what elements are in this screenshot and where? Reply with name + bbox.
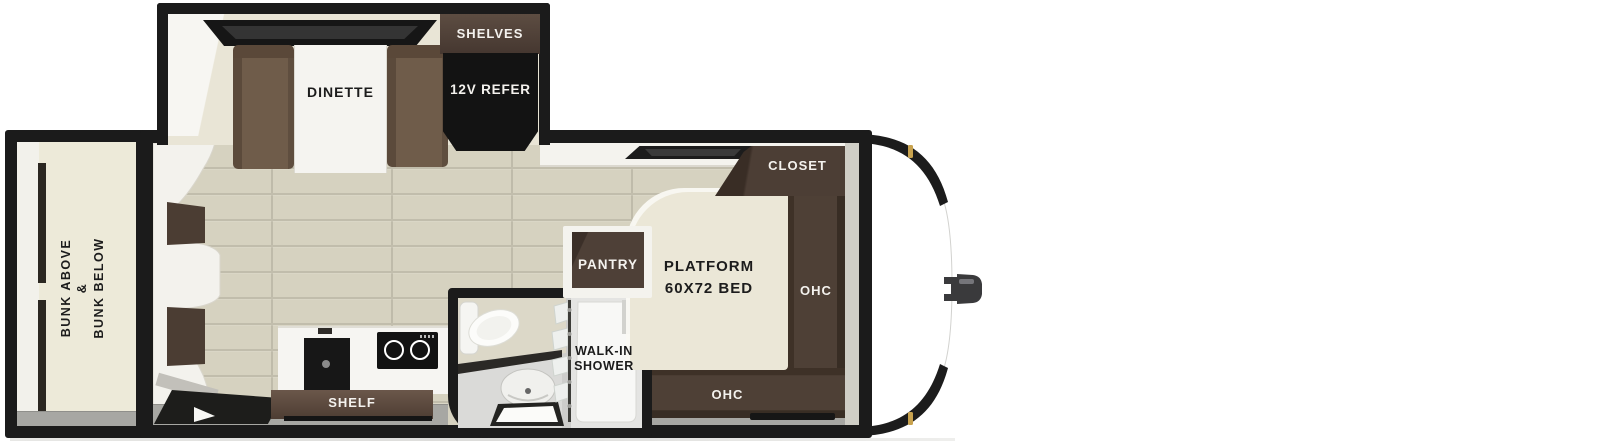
slideout-window-inner [222,26,418,39]
bed-label-line1: PLATFORM [630,258,788,275]
bed-label-line2: 60X72 BED [630,280,788,297]
bunk-label: BUNK ABOVE & BUNK BELOW [58,213,112,363]
shelves-label: SHELVES [440,26,540,41]
refrigerator-label: 12V REFER [443,82,538,97]
cooktop [377,332,438,369]
marker-light-top [908,145,913,158]
bunk-label-line2: & [74,213,90,363]
bed-step [750,413,835,420]
shelf-label: SHELF [271,395,433,410]
floorplan-canvas: BUNK ABOVE & BUNK BELOW SHELF [0,0,1600,443]
shower-glass-1 [554,302,568,324]
closet-label: CLOSET [755,158,840,173]
sink-drain [525,388,531,394]
bunk-label-line3: BUNK BELOW [91,213,107,363]
front-cap-graphic [855,128,995,443]
dinette-table [294,45,387,173]
dinette-label: DINETTE [294,84,387,100]
shower-label-line2: SHOWER [556,359,652,373]
ohc-bottom-label: OHC [700,387,755,402]
hitch-highlight [959,279,974,284]
burner-right [410,340,430,360]
ground-shadow [10,438,955,441]
bunk-room: BUNK ABOVE & BUNK BELOW [5,130,148,438]
bunk-door-frame-lower [38,300,46,418]
burner-left [384,340,404,360]
shower-label-line1: WALK-IN [556,344,652,358]
faucet [318,328,332,334]
shower-glass-4 [554,382,568,402]
bunk-floor-strip [17,411,136,426]
dinette-bench-right [387,45,448,167]
bath-mat [496,406,558,422]
oven-knob [322,360,330,368]
ohc-right-label: OHC [787,283,845,298]
hitch-notch [944,284,951,294]
refrigerator [443,53,538,151]
dinette-bench-left [233,45,294,169]
bunk-door-frame-upper [38,163,46,283]
shelf-shadow [284,416,432,421]
bunk-label-line1: BUNK ABOVE [58,213,74,363]
bunk-end-upper [167,202,205,245]
cooktop-controls [420,335,434,338]
bedroom-side-wall [845,143,859,425]
marker-light-bottom [908,412,913,425]
vent-window-inner [645,149,741,156]
bunk-end-lower [167,307,205,366]
bunk-wall [17,142,39,412]
pantry-label: PANTRY [572,257,644,272]
